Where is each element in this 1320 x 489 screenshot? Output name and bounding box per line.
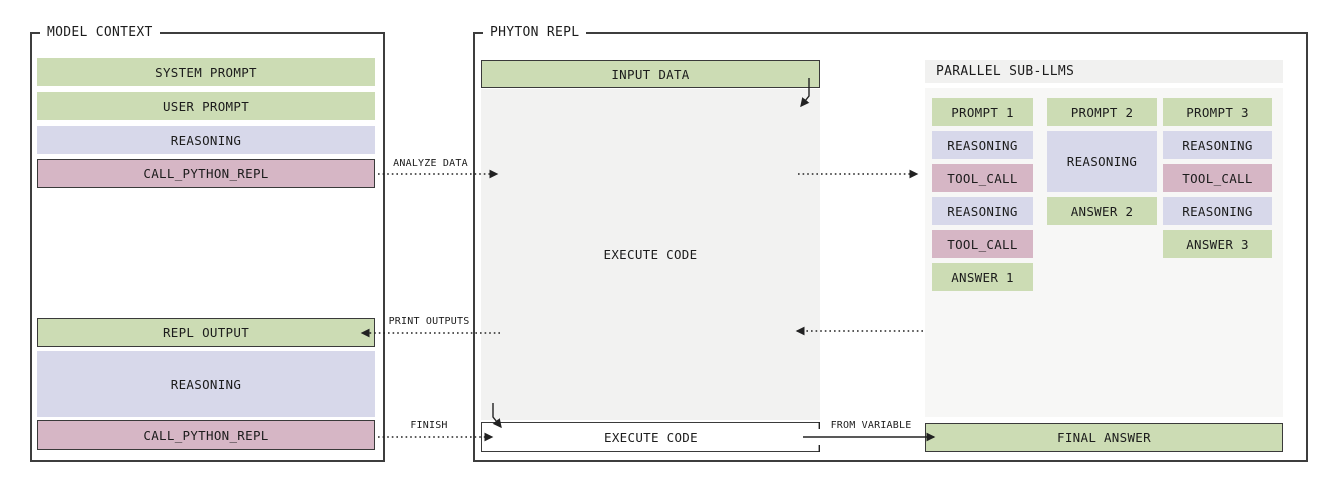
analyze-data-label: ANALYZE DATA [383, 158, 478, 169]
sub-llm1-prompt: PROMPT 1 [932, 98, 1033, 126]
input-data-block: INPUT DATA [481, 60, 820, 88]
sub-llm2-answer: ANSWER 2 [1047, 197, 1157, 225]
from-variable-label: FROM VARIABLE [821, 420, 921, 431]
finish-label: FINISH [384, 420, 474, 431]
user-prompt-block: USER PROMPT [37, 92, 375, 120]
call-python-repl-block-2: CALL_PYTHON_REPL [37, 420, 375, 450]
execute-code-area: EXECUTE CODE [481, 89, 820, 420]
reasoning-block-2: REASONING [37, 351, 375, 417]
reasoning-block-1: REASONING [37, 126, 375, 154]
sub-llm1-tool-call-1: TOOL_CALL [932, 164, 1033, 192]
sub-llm2-reasoning: REASONING [1047, 131, 1157, 192]
print-outputs-label: PRINT OUTPUTS [374, 316, 484, 327]
call-python-repl-block-1: CALL_PYTHON_REPL [37, 159, 375, 188]
execute-code-area-label: EXECUTE CODE [604, 247, 698, 262]
sub-llm3-tool-call: TOOL_CALL [1163, 164, 1272, 192]
repl-output-block: REPL OUTPUT [37, 318, 375, 347]
model-context-title: MODEL CONTEXT [40, 25, 160, 40]
execute-code-box: EXECUTE CODE [481, 422, 820, 452]
python-repl-title: PHYTON REPL [483, 25, 586, 40]
execute-code-box-label: EXECUTE CODE [604, 430, 698, 445]
sub-llm3-answer: ANSWER 3 [1163, 230, 1272, 258]
system-prompt-block: SYSTEM PROMPT [37, 58, 375, 86]
sub-llm1-answer: ANSWER 1 [932, 263, 1033, 291]
sub-llm2-prompt: PROMPT 2 [1047, 98, 1157, 126]
parallel-sub-llms-header: PARALLEL SUB-LLMS [925, 60, 1283, 83]
sub-llm3-reasoning-2: REASONING [1163, 197, 1272, 225]
sub-llm1-reasoning-2: REASONING [932, 197, 1033, 225]
sub-llm3-reasoning-1: REASONING [1163, 131, 1272, 159]
sub-llm1-reasoning-1: REASONING [932, 131, 1033, 159]
parallel-sub-llms-title: PARALLEL SUB-LLMS [936, 64, 1074, 79]
sub-llm1-tool-call-2: TOOL_CALL [932, 230, 1033, 258]
sub-llm3-prompt: PROMPT 3 [1163, 98, 1272, 126]
final-answer-block: FINAL ANSWER [925, 423, 1283, 452]
diagram-canvas: MODEL CONTEXT SYSTEM PROMPT USER PROMPT … [0, 0, 1320, 489]
